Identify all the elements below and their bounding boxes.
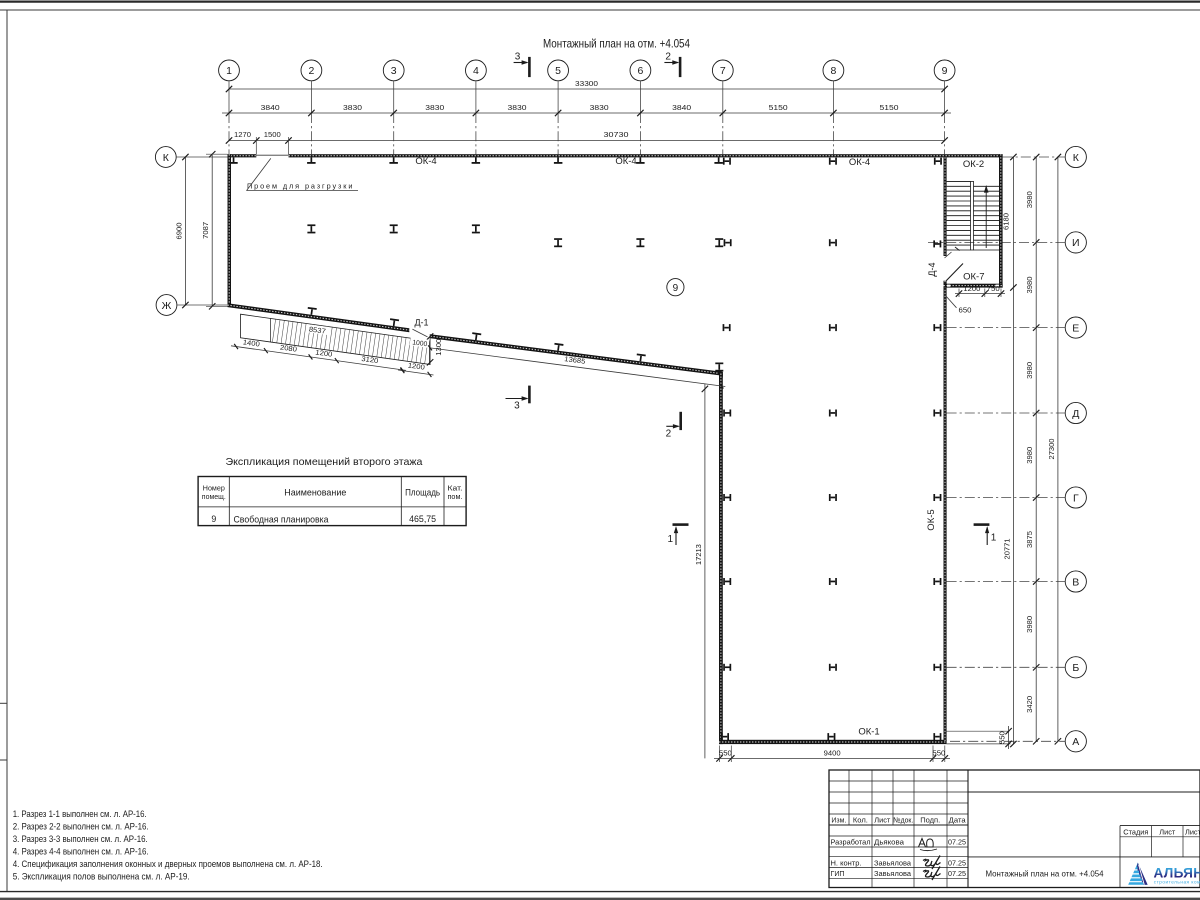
svg-text:550: 550 <box>1000 731 1007 744</box>
svg-text:4. Спецификация заполнения око: 4. Спецификация заполнения оконных и две… <box>13 859 323 869</box>
svg-text:Завьялова: Завьялова <box>874 858 912 867</box>
svg-text:ОК-2: ОК-2 <box>963 159 984 170</box>
svg-text:9400: 9400 <box>824 750 841 757</box>
svg-text:2. Разрез 2-2 выполнен см. л.: 2. Разрез 2-2 выполнен см. л. АР-16. <box>13 822 149 832</box>
svg-text:07.25: 07.25 <box>948 869 966 878</box>
svg-text:750: 750 <box>987 286 1000 293</box>
svg-text:8: 8 <box>830 65 836 77</box>
svg-text:3980: 3980 <box>1027 447 1034 464</box>
svg-text:3875: 3875 <box>1027 531 1034 548</box>
svg-text:3980: 3980 <box>1027 616 1034 633</box>
svg-text:строительная компания: строительная компания <box>1154 880 1200 885</box>
svg-text:Лист: Лист <box>874 815 890 824</box>
svg-text:Разработал: Разработал <box>831 837 871 846</box>
svg-text:2: 2 <box>308 65 314 77</box>
svg-text:Д: Д <box>1072 408 1079 420</box>
svg-text:Изм.: Изм. <box>831 815 846 824</box>
svg-text:3840: 3840 <box>672 105 691 112</box>
svg-text:Лист: Лист <box>1159 827 1175 836</box>
svg-text:1. Разрез 1-1 выполнен см. л.: 1. Разрез 1-1 выполнен см. л. АР-16. <box>13 809 147 819</box>
svg-text:3830: 3830 <box>343 105 362 112</box>
svg-text:Стадия: Стадия <box>1123 827 1148 836</box>
svg-text:3. Разрез 3-3 выполнен см. л.: 3. Разрез 3-3 выполнен см. л. АР-16. <box>13 834 148 844</box>
svg-text:465,75: 465,75 <box>409 514 436 524</box>
svg-text:7: 7 <box>720 65 726 77</box>
svg-text:5150: 5150 <box>769 105 788 112</box>
svg-text:ОК-4: ОК-4 <box>415 156 436 167</box>
svg-text:3830: 3830 <box>590 105 609 112</box>
svg-text:3: 3 <box>391 65 397 77</box>
svg-text:30730: 30730 <box>604 130 629 139</box>
svg-text:Е: Е <box>1072 322 1079 334</box>
svg-text:3980: 3980 <box>1027 191 1034 208</box>
svg-text:пом.: пом. <box>448 494 463 501</box>
svg-text:Б: Б <box>1072 662 1079 674</box>
svg-text:17213: 17213 <box>696 544 703 565</box>
svg-text:3980: 3980 <box>1027 362 1034 379</box>
svg-text:5150: 5150 <box>880 105 899 112</box>
svg-text:3830: 3830 <box>508 105 527 112</box>
svg-text:Д-4: Д-4 <box>927 262 937 276</box>
svg-text:Свободная планировка: Свободная планировка <box>234 515 329 525</box>
svg-text:20771: 20771 <box>1004 538 1011 559</box>
svg-text:3420: 3420 <box>1027 696 1034 713</box>
svg-text:ГИП: ГИП <box>831 869 845 878</box>
svg-text:3: 3 <box>515 52 521 63</box>
svg-text:1200: 1200 <box>963 286 980 293</box>
svg-text:550: 550 <box>932 750 945 757</box>
svg-text:9: 9 <box>211 514 216 524</box>
svg-text:1: 1 <box>226 65 232 77</box>
svg-text:1300: 1300 <box>436 339 443 356</box>
svg-text:2: 2 <box>665 52 671 63</box>
svg-text:АЛЬЯНС: АЛЬЯНС <box>1154 866 1200 881</box>
svg-text:ОК-4: ОК-4 <box>849 157 870 168</box>
svg-text:1270: 1270 <box>234 132 251 139</box>
svg-text:550: 550 <box>719 750 732 757</box>
svg-text:3840: 3840 <box>261 105 280 112</box>
svg-text:3: 3 <box>514 400 520 411</box>
svg-text:Монтажный план на отм. +4.054: Монтажный план на отм. +4.054 <box>986 869 1104 879</box>
svg-text:6180: 6180 <box>1004 213 1011 230</box>
svg-text:Проем для разгрузки: Проем для разгрузки <box>247 182 354 191</box>
svg-text:Н. контр.: Н. контр. <box>831 858 862 867</box>
svg-text:№док.: №док. <box>893 815 913 824</box>
svg-text:Экспликация помещений второго: Экспликация помещений второго этажа <box>226 456 423 468</box>
svg-text:07.25: 07.25 <box>948 858 966 867</box>
svg-text:6900: 6900 <box>177 222 184 239</box>
svg-text:5. Экспликация полов выполнена: 5. Экспликация полов выполнена см. л. АР… <box>13 871 190 881</box>
svg-text:Кат.: Кат. <box>448 485 463 492</box>
svg-text:Дата: Дата <box>949 815 967 824</box>
svg-text:1500: 1500 <box>264 132 281 139</box>
svg-text:4: 4 <box>473 65 479 77</box>
svg-text:3980: 3980 <box>1027 276 1034 293</box>
svg-text:2: 2 <box>666 428 672 439</box>
svg-text:07.25: 07.25 <box>948 837 966 846</box>
svg-text:5: 5 <box>555 65 561 77</box>
svg-text:Подп.: Подп. <box>920 815 940 824</box>
svg-text:Ж: Ж <box>162 300 172 312</box>
svg-text:Номер: Номер <box>203 483 225 492</box>
svg-text:Кол.: Кол. <box>853 815 868 824</box>
svg-text:Г: Г <box>1073 492 1079 504</box>
svg-text:Лист: Лист <box>1185 827 1200 836</box>
svg-text:6: 6 <box>637 65 643 77</box>
svg-text:Наименование: Наименование <box>284 488 346 498</box>
svg-text:ОК-7: ОК-7 <box>963 272 984 283</box>
svg-text:В: В <box>1072 576 1079 588</box>
svg-text:33300: 33300 <box>575 81 598 88</box>
svg-text:1: 1 <box>991 532 997 543</box>
svg-text:3830: 3830 <box>425 105 444 112</box>
svg-text:К: К <box>163 152 170 164</box>
svg-text:Завьялова: Завьялова <box>874 869 912 878</box>
svg-text:Монтажный план на отм. +4.054: Монтажный план на отм. +4.054 <box>543 37 690 51</box>
svg-text:9: 9 <box>942 65 948 77</box>
svg-text:А: А <box>1072 736 1079 748</box>
svg-text:Д-1: Д-1 <box>414 317 428 327</box>
svg-text:И: И <box>1072 237 1080 249</box>
svg-text:1: 1 <box>668 534 674 545</box>
svg-text:9: 9 <box>673 283 679 294</box>
svg-text:К: К <box>1073 152 1080 164</box>
svg-text:Площадь: Площадь <box>405 488 440 498</box>
svg-text:помещ.: помещ. <box>202 492 226 501</box>
svg-text:ОК-1: ОК-1 <box>858 726 879 737</box>
svg-text:ОК-4: ОК-4 <box>615 156 636 167</box>
svg-text:650: 650 <box>959 307 972 314</box>
svg-text:27300: 27300 <box>1049 438 1056 459</box>
svg-text:7087: 7087 <box>203 222 210 239</box>
svg-text:4. Разрез 4-4 выполнен см. л.: 4. Разрез 4-4 выполнен см. л. АР-16. <box>13 846 149 856</box>
svg-text:ОК-5: ОК-5 <box>926 509 937 530</box>
svg-text:Дьякова: Дьякова <box>874 837 905 846</box>
